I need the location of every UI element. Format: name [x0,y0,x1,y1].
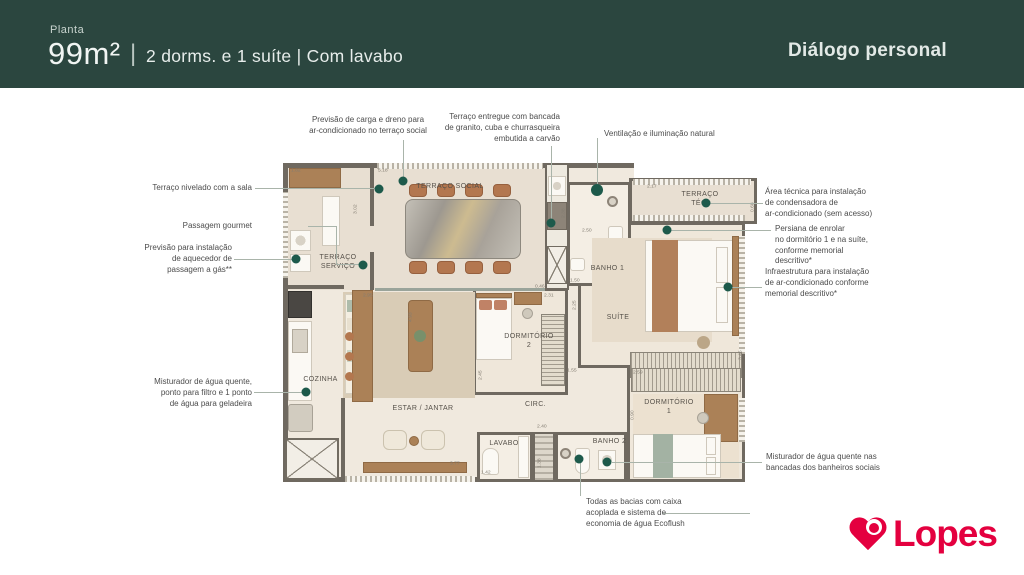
dimension-label: 1.82 [291,167,301,173]
plan-subtitle: 2 dorms. e 1 suíte | Com lavabo [146,46,403,67]
window-dormitorio1 [739,398,745,442]
dimension-label: 4.93 [407,312,413,322]
dorm1-pillow [706,437,716,455]
dimension-label: 3.77 [450,460,460,466]
callout-dot [399,177,408,186]
dorm2-pillow [494,300,507,310]
leader-line [234,259,292,260]
fridge [288,404,313,432]
suite-bed-runner [652,240,678,332]
dorm2-chair [522,308,533,319]
washing-machine [290,230,311,251]
lopes-heart-icon [848,518,888,556]
glass-door-terraco [375,288,545,291]
window-suite [739,236,745,354]
room-shaft-bottom [533,432,555,482]
dimension-label: 2.50 [582,227,592,233]
shaft-top [547,246,567,284]
callout-misturador-banheiros: Misturador de água quente nas bancadas d… [766,452,941,474]
suite-pillow [716,287,728,323]
leader-line [612,462,762,463]
callout-infraestrutura: Infraestrutura para instalação de ar-con… [765,267,940,299]
dorm1-pillow [706,457,716,475]
callout-dot [302,388,311,397]
stove [288,291,312,318]
header-divider: | [130,40,136,68]
room-label-dormitorio1: DORMITÓRIO 1 [630,398,708,416]
plan-notch [634,160,745,178]
lopes-logo: Lopes [893,513,997,555]
dorm1-wardrobe [631,368,741,392]
room-label-cozinha: COZINHA [293,375,348,384]
dimension-label: 3.02 [352,204,358,214]
room-label-dormitorio2: DORMITÓRIO 2 [490,332,568,350]
lounge-chair [383,430,407,450]
dimension-label: 2.38 [560,208,566,218]
kitchen-counter-bar [352,290,373,402]
leader-line [597,138,598,185]
leader-line [580,463,581,496]
lounge-chair [421,430,445,450]
callout-dot [575,455,584,464]
leader-line [551,146,552,219]
dining-table [405,199,521,259]
callout-dot [724,283,733,292]
leader-line [308,226,336,227]
callout-terraco-nivelado: Terraço nivelado com a sala [108,183,252,194]
callout-aquecedor: Previsão para instalação de aquecedor de… [92,243,232,275]
dimension-label: 3.45 [737,350,743,360]
dimension-label: 0.90 [629,410,635,420]
callout-dot [292,255,301,264]
callout-passagem-gourmet: Passagem gourmet [108,221,252,232]
callout-ventilacao: Ventilação e iluminação natural [604,129,754,140]
leader-line [403,140,404,178]
brand-logotype: Diálogo personal [788,40,947,62]
shower-banho1 [607,196,618,207]
dorm1-bed-runner [653,434,673,478]
bar-stool [345,352,354,361]
dimension-label: 2.45 [477,370,483,380]
room-label-circ: CIRC. [513,400,558,409]
dining-chair [409,261,427,274]
dimension-label: 1.38 [536,458,542,468]
callout-dot [359,261,368,270]
bar-stool [345,332,354,341]
dining-chair [465,261,483,274]
leader-line [671,230,771,231]
room-label-suite: SUÍTE [593,313,643,322]
room-label-lavabo: LAVABO [479,439,529,448]
room-label-terraco-social: TERRAÇO SOCIAL [400,182,500,191]
dimension-label: 2.25 [571,300,577,310]
dimension-label: 5.18 [378,167,388,173]
callout-persiana: Persiana de enrolar no dormitório 1 e na… [775,224,935,267]
plant [414,330,426,342]
dining-chair [493,261,511,274]
dimension-label: 1.55 [567,367,577,373]
header-banner: Planta 99m² | 2 dorms. e 1 suíte | Com l… [0,0,1024,88]
room-label-terraco-tec: TERRAÇO TÉC. [660,190,740,208]
dimension-label: 0.46 [535,283,545,289]
room-label-banho1: BANHO 1 [580,264,635,273]
dorm2-pillow [479,300,492,310]
window-estar-bottom [345,476,475,482]
leader-line [710,203,763,204]
dimension-label: 2.17 [647,183,657,189]
side-table [409,436,419,446]
dimension-label: 2.40 [537,423,547,429]
leader-line [336,226,337,264]
leader-line [255,188,375,189]
callout-area-tecnica: Área técnica para instalação de condensa… [765,187,940,219]
room-label-estar: ESTAR / JANTAR [368,404,478,413]
dorm2-desk [514,292,542,305]
page: Planta 99m² | 2 dorms. e 1 suíte | Com l… [0,0,1024,575]
callout-bacias-ecoflush: Todas as bacias com caixa acoplada e sis… [586,497,721,529]
suite-pillow [716,247,728,283]
callout-dot [702,199,711,208]
callout-dot [591,184,603,196]
leader-line [254,392,302,393]
dimension-label: 2.95 [363,292,373,298]
callout-dot [547,219,556,228]
window-terraco-tec-bottom [633,215,745,221]
suite-headboard [732,236,739,336]
dining-chair [437,261,455,274]
suite-pouf [697,336,710,349]
wall-servico-cozinha [288,285,344,289]
leader-line [732,287,762,288]
callout-misturador-cozinha: Misturador de água quente, ponto para fi… [110,377,252,409]
dimension-label: 2.59 [633,369,643,375]
plan-eyebrow: Planta [50,24,84,36]
dimension-label: 2.31 [544,292,554,298]
kitchen-sink [292,329,308,353]
room-label-banho2: BANHO 2 [582,437,637,446]
shower-banho2 [560,448,571,459]
dimension-label: 1.42 [481,469,491,475]
callout-dot [663,226,672,235]
wall-servico-social-b [370,252,374,290]
dimension-label: 1.50 [570,277,580,283]
window-terraco-social [377,163,543,169]
plan-area: 99m² [48,36,121,72]
wall-servico-social-a [370,168,374,226]
shaft-bottom-left [285,438,339,480]
callout-terraco-entregue: Terraço entregue com bancada de granito,… [420,112,560,144]
window-servico [283,192,288,278]
callout-dot [375,185,384,194]
wall-cozinha-estar [341,398,345,482]
callout-dot [603,458,612,467]
service-cabinet [322,196,340,246]
